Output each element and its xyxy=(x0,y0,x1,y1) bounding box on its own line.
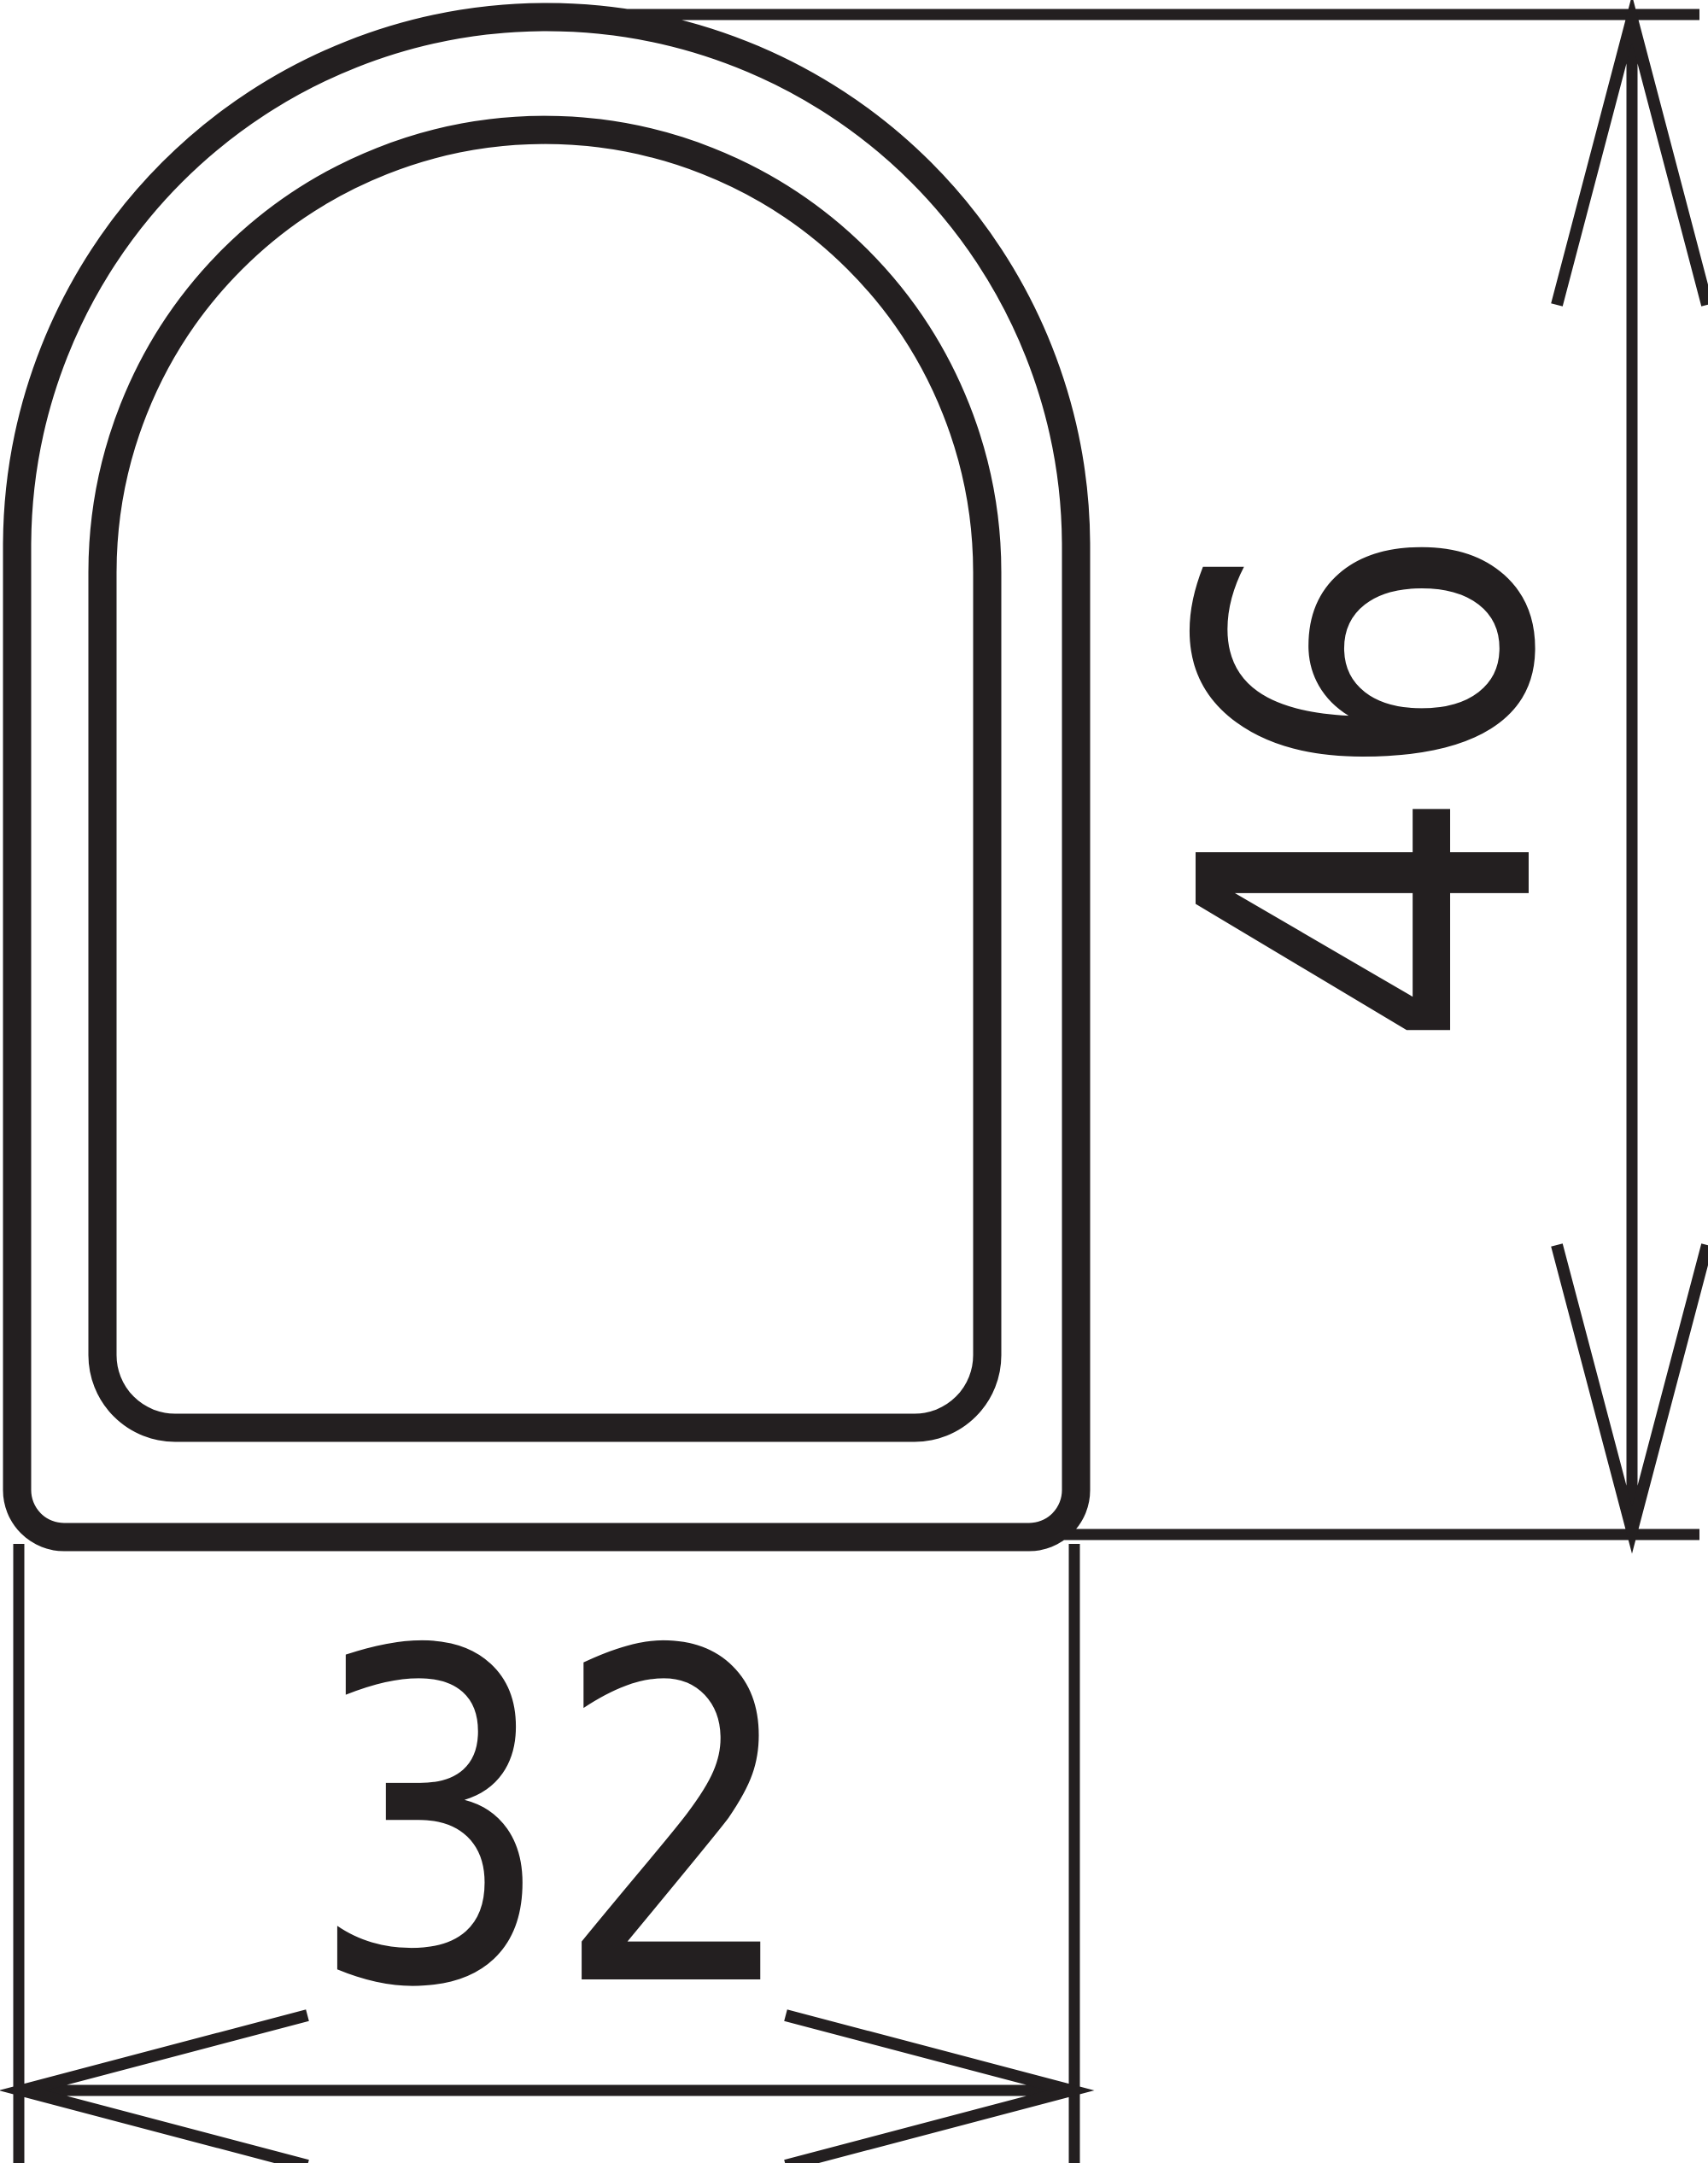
width-dimension-label: 32 xyxy=(308,1556,799,2088)
height-dimension-label: 46 xyxy=(1105,521,1637,1050)
technical-drawing: 46 32 xyxy=(0,0,1708,2163)
drawing-background xyxy=(0,0,1708,2163)
